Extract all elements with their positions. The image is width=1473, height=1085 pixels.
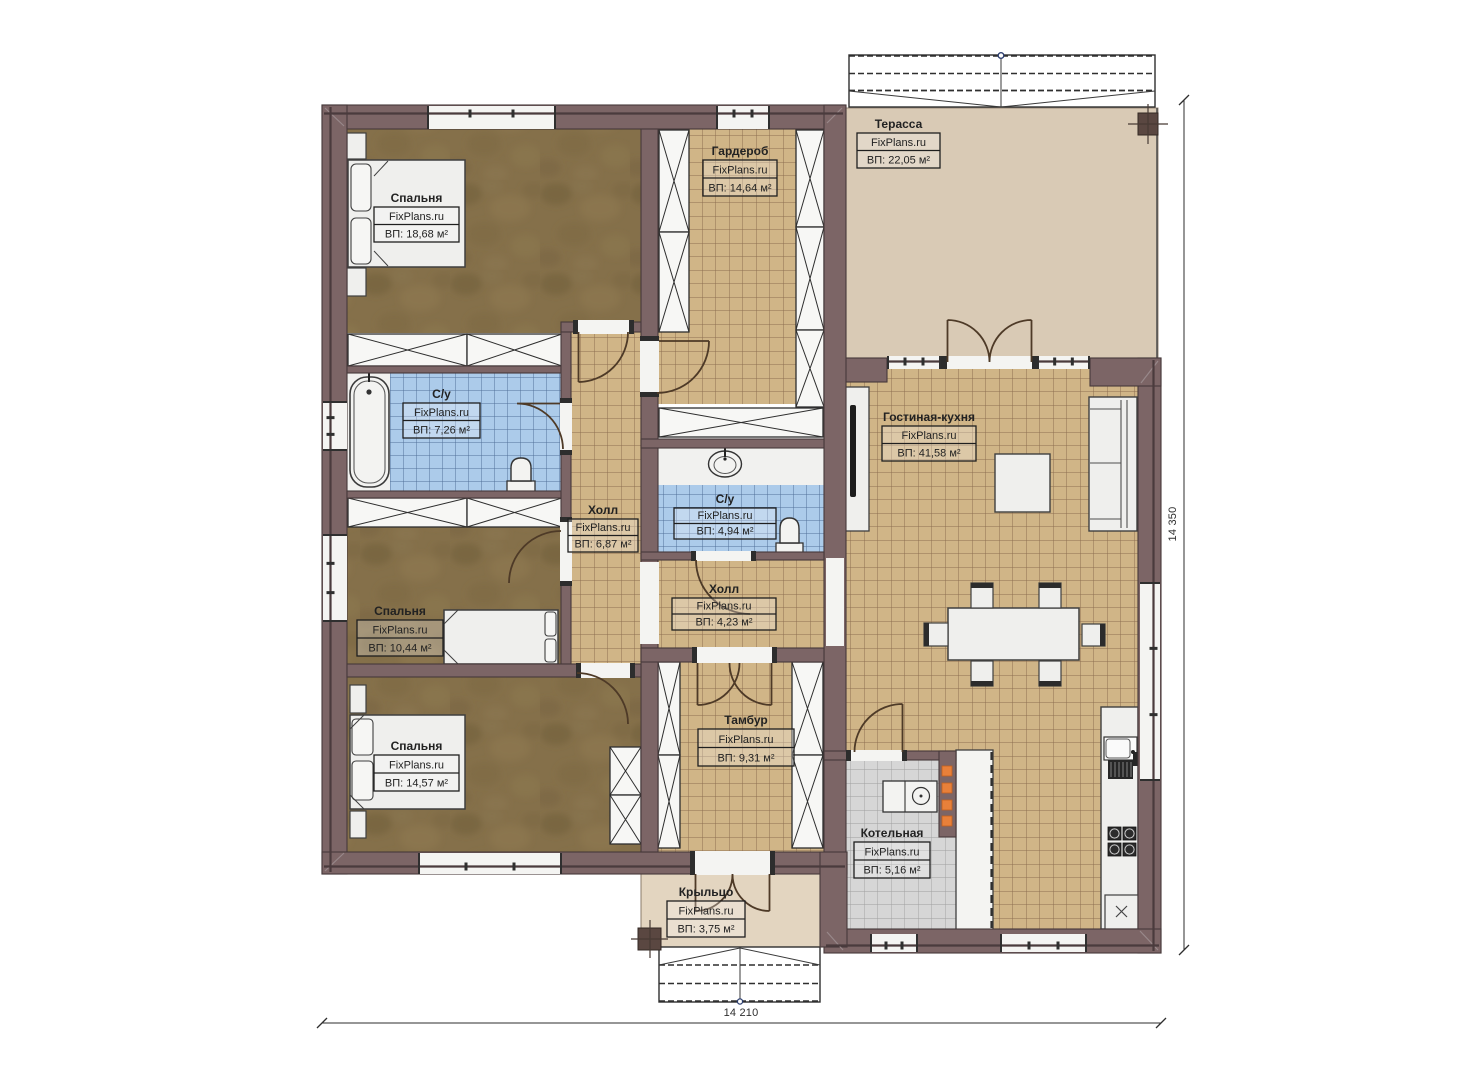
svg-text:ВП: 10,44 м²: ВП: 10,44 м² (368, 643, 432, 655)
svg-text:ВП: 41,58 м²: ВП: 41,58 м² (897, 448, 961, 460)
svg-text:FixPlans.ru: FixPlans.ru (372, 625, 427, 637)
svg-text:ВП: 3,75 м²: ВП: 3,75 м² (677, 924, 734, 936)
svg-text:ВП: 22,05 м²: ВП: 22,05 м² (867, 155, 931, 167)
svg-text:Спальня: Спальня (391, 191, 443, 205)
svg-text:FixPlans.ru: FixPlans.ru (718, 734, 773, 746)
svg-text:14 210: 14 210 (724, 1007, 759, 1019)
svg-text:ВП: 4,94 м²: ВП: 4,94 м² (696, 526, 753, 538)
svg-text:FixPlans.ru: FixPlans.ru (389, 211, 444, 223)
svg-text:FixPlans.ru: FixPlans.ru (871, 137, 926, 149)
svg-text:ВП: 14,64 м²: ВП: 14,64 м² (708, 183, 772, 195)
svg-text:Холл: Холл (709, 582, 739, 596)
svg-text:FixPlans.ru: FixPlans.ru (389, 760, 444, 772)
svg-text:ВП: 18,68 м²: ВП: 18,68 м² (385, 229, 449, 241)
svg-text:FixPlans.ru: FixPlans.ru (901, 430, 956, 442)
svg-text:ВП: 7,26 м²: ВП: 7,26 м² (413, 425, 470, 437)
svg-text:Гостиная-кухня: Гостиная-кухня (883, 410, 975, 424)
svg-text:ВП: 6,87 м²: ВП: 6,87 м² (574, 539, 631, 551)
svg-text:FixPlans.ru: FixPlans.ru (696, 601, 751, 613)
svg-text:FixPlans.ru: FixPlans.ru (414, 407, 469, 419)
svg-text:FixPlans.ru: FixPlans.ru (575, 522, 630, 534)
svg-text:С/у: С/у (716, 492, 735, 506)
svg-text:ВП: 5,16 м²: ВП: 5,16 м² (863, 865, 920, 877)
svg-text:FixPlans.ru: FixPlans.ru (697, 510, 752, 522)
svg-text:FixPlans.ru: FixPlans.ru (678, 906, 733, 918)
svg-text:Гардероб: Гардероб (712, 144, 769, 158)
svg-text:ВП: 9,31 м²: ВП: 9,31 м² (717, 753, 774, 765)
svg-text:Тамбур: Тамбур (724, 713, 768, 727)
svg-text:Крыльцо: Крыльцо (679, 885, 734, 899)
svg-text:Спальня: Спальня (391, 739, 443, 753)
svg-text:Спальня: Спальня (374, 604, 426, 618)
svg-text:С/у: С/у (432, 387, 451, 401)
svg-text:Холл: Холл (588, 503, 618, 517)
svg-text:FixPlans.ru: FixPlans.ru (864, 847, 919, 859)
svg-text:Терасса: Терасса (875, 117, 923, 131)
svg-text:ВП: 14,57 м²: ВП: 14,57 м² (385, 778, 449, 790)
svg-text:Котельная: Котельная (861, 826, 924, 840)
svg-text:FixPlans.ru: FixPlans.ru (712, 165, 767, 177)
svg-text:14 350: 14 350 (1167, 507, 1179, 542)
svg-text:ВП: 4,23 м²: ВП: 4,23 м² (695, 617, 752, 629)
